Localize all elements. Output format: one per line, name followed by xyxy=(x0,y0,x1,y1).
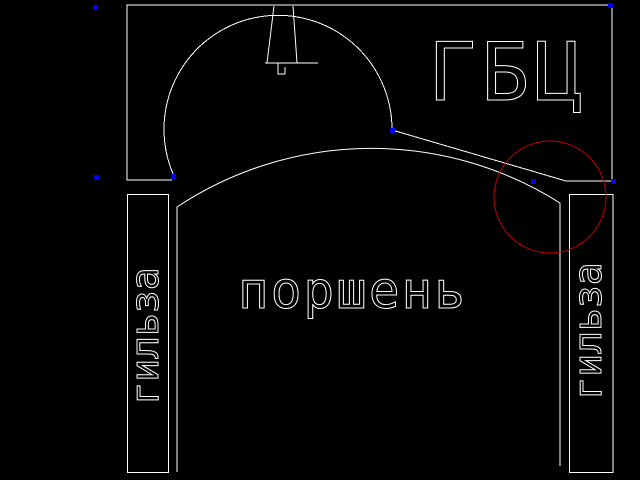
grip-point[interactable] xyxy=(171,174,176,179)
label-liner-right[interactable]: гильза xyxy=(566,262,610,399)
grip-point[interactable] xyxy=(390,128,395,133)
grip-point[interactable] xyxy=(608,3,613,8)
grip-point[interactable] xyxy=(93,5,98,10)
grip-point[interactable] xyxy=(94,175,99,180)
grip-point[interactable] xyxy=(531,179,536,184)
label-cylinder-head[interactable]: ГБЦ xyxy=(428,26,588,119)
drawing-canvas[interactable]: ГБЦ поршень гильза гильза xyxy=(0,0,640,480)
label-liner-left[interactable]: гильза xyxy=(123,267,167,404)
grip-point[interactable] xyxy=(611,179,616,184)
cad-viewport[interactable]: ГБЦ поршень гильза гильза xyxy=(0,0,640,480)
label-piston[interactable]: поршень xyxy=(238,262,467,321)
